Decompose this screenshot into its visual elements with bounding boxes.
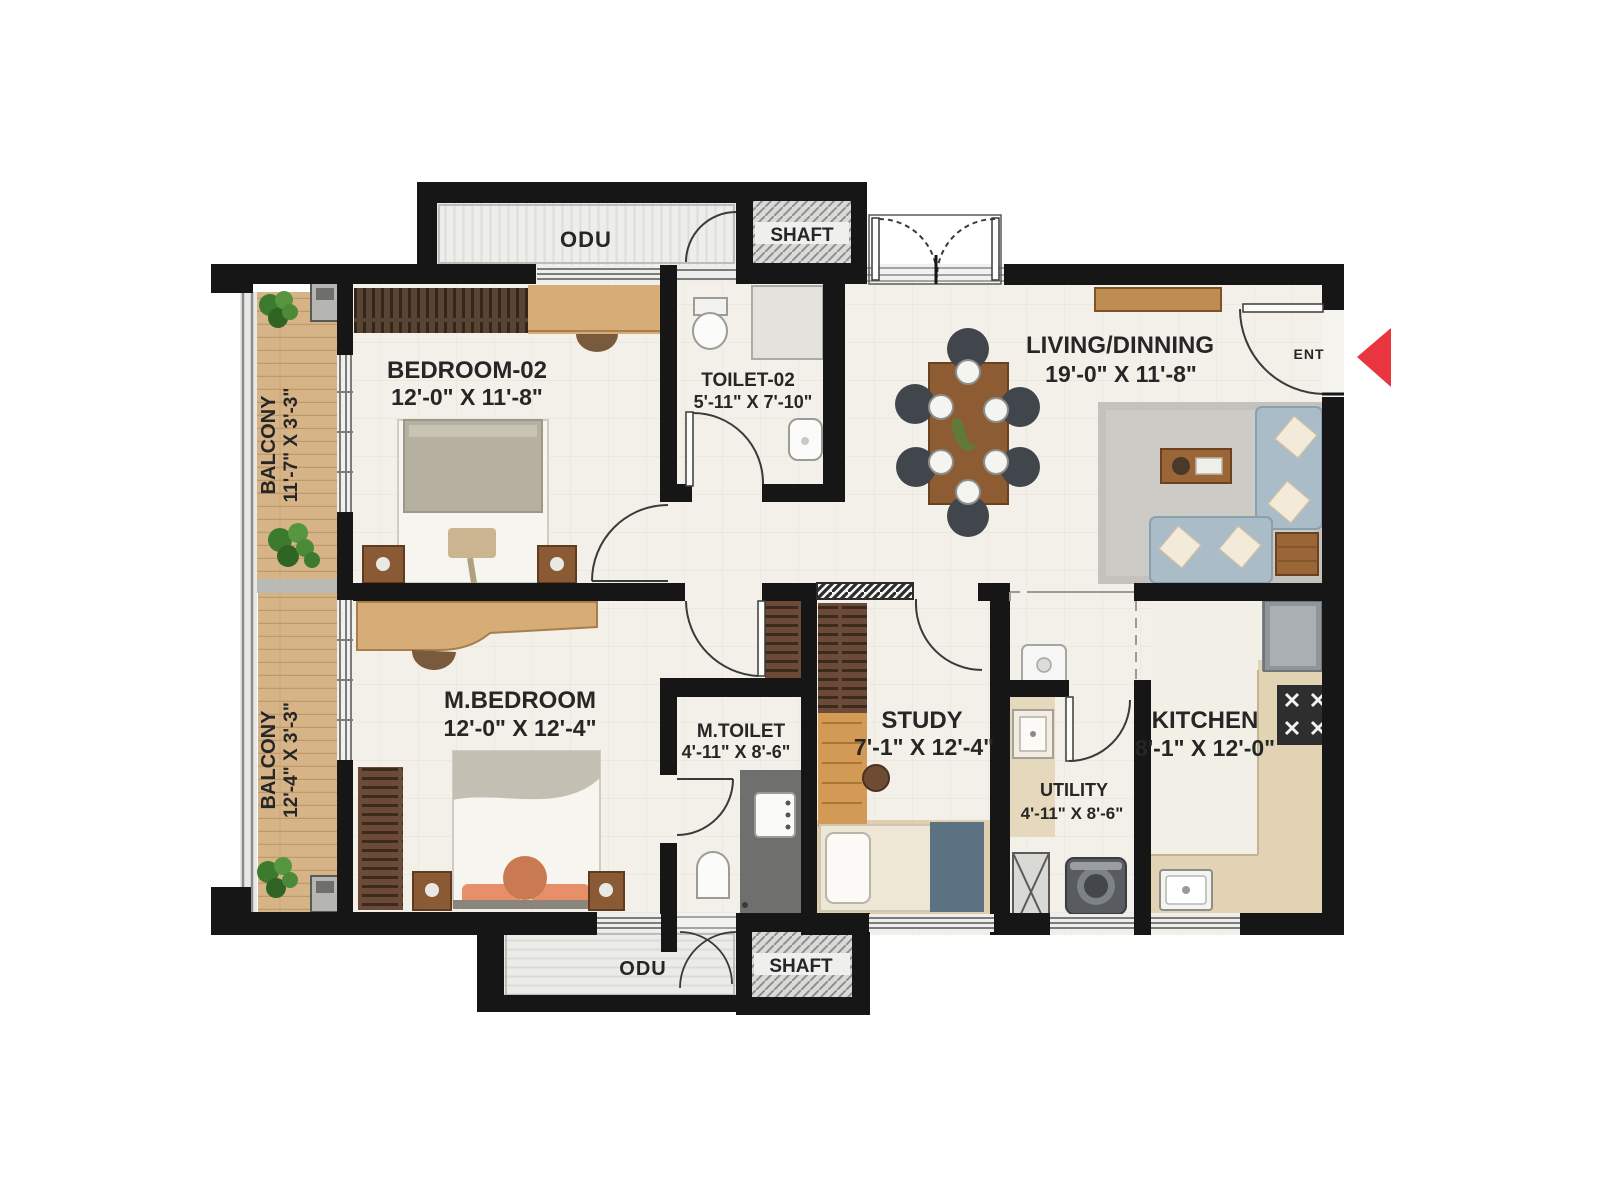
svg-text:M.TOILET: M.TOILET (697, 721, 786, 742)
svg-text:4'-11" X 8'-6": 4'-11" X 8'-6" (682, 742, 791, 762)
svg-text:4'-11" X 8'-6": 4'-11" X 8'-6" (1021, 804, 1124, 823)
svg-text:BEDROOM-02: BEDROOM-02 (387, 357, 547, 384)
svg-text:BALCONY: BALCONY (258, 395, 280, 495)
svg-text:7'-1" X 12'-4": 7'-1" X 12'-4" (854, 734, 994, 760)
svg-text:12'-0" X 12'-4": 12'-0" X 12'-4" (444, 715, 597, 741)
svg-text:LIVING/DINNING: LIVING/DINNING (1026, 332, 1214, 359)
svg-text:8'-1" X 12'-0": 8'-1" X 12'-0" (1135, 735, 1275, 761)
svg-text:12'-0" X 11'-8": 12'-0" X 11'-8" (391, 384, 543, 410)
svg-text:5'-11" X 7'-10": 5'-11" X 7'-10" (694, 392, 813, 412)
svg-text:KITCHEN: KITCHEN (1152, 707, 1259, 734)
svg-text:UTILITY: UTILITY (1040, 780, 1108, 800)
svg-text:STUDY: STUDY (881, 707, 962, 734)
svg-text:19'-0" X 11'-8": 19'-0" X 11'-8" (1045, 361, 1197, 387)
svg-text:TOILET-02: TOILET-02 (701, 370, 795, 391)
svg-text:M.BEDROOM: M.BEDROOM (444, 687, 596, 714)
svg-text:12'-4" X 3'-3": 12'-4" X 3'-3" (281, 702, 302, 818)
svg-text:SHAFT: SHAFT (769, 956, 833, 977)
svg-text:11'-7" X 3'-3": 11'-7" X 3'-3" (281, 388, 302, 503)
svg-text:BALCONY: BALCONY (258, 710, 280, 810)
svg-text:ODU: ODU (560, 227, 612, 252)
svg-text:ODU: ODU (619, 958, 666, 980)
svg-text:SHAFT: SHAFT (770, 225, 834, 246)
svg-text:ENT: ENT (1294, 346, 1325, 362)
